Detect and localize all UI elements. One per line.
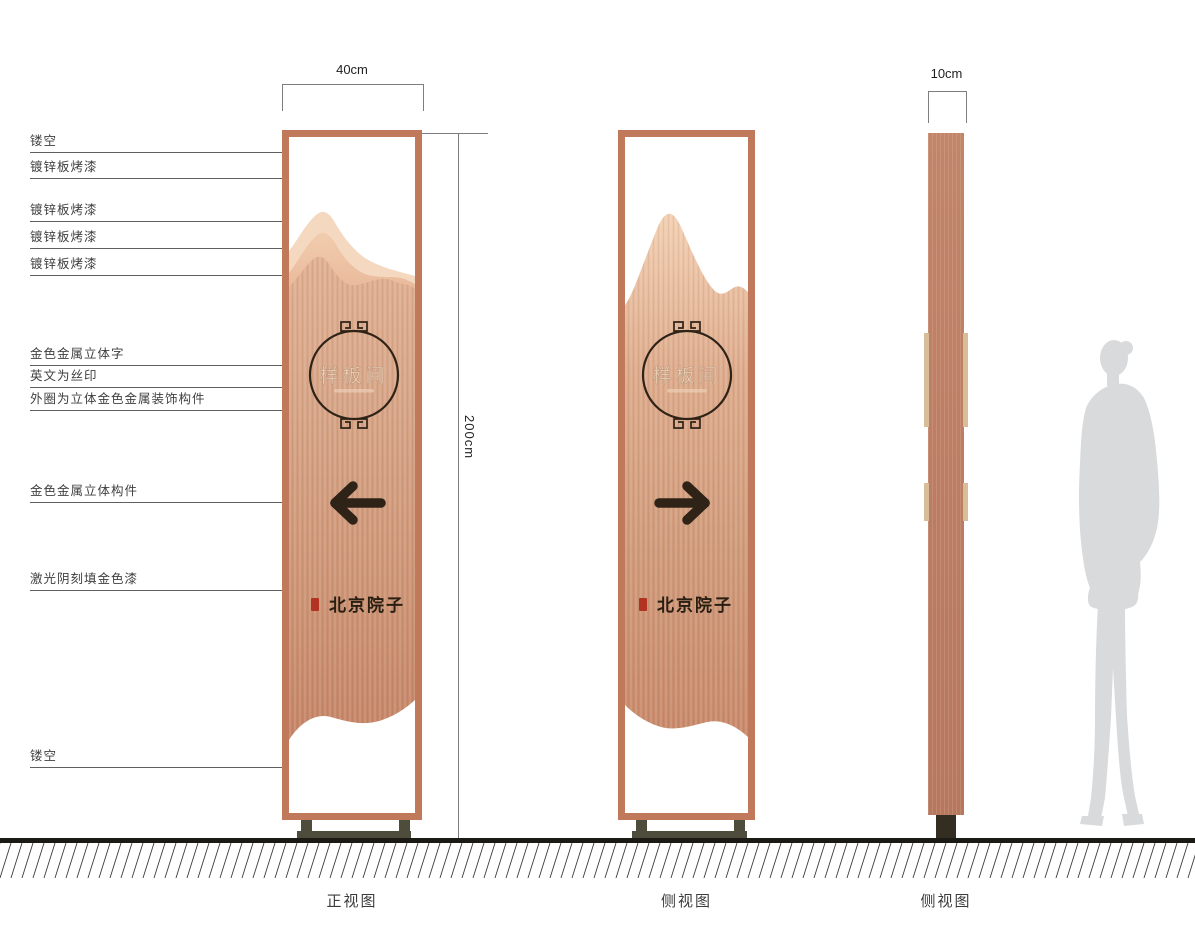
annotation-label: 镀锌板烤漆 [30,226,98,245]
profile-protrusion-medallion [963,333,968,427]
sign-side-artwork: 样板间 北京院子 [625,137,748,813]
medallion-text: 样板间 [319,365,388,387]
brand-text: 北京院子 [657,595,733,616]
annotation-label: 镀锌板烤漆 [30,199,98,218]
sign-profile-view [928,133,964,815]
english-silkscreen-text [334,389,374,393]
annotation-galvanized-3: 镀锌板烤漆 [30,230,293,249]
annotation-label: 英文为丝印 [30,365,98,384]
annotation-label: 激光阴刻填金色漆 [30,568,138,587]
dimension-height-label: 200cm [462,415,477,459]
dimension-height-tick [422,133,488,134]
caption-side-view-1: 侧视图 [618,890,755,911]
red-seal-stamp-icon [639,598,647,611]
annotation-label: 金色金属立体构件 [30,480,138,499]
annotation-label: 镂空 [30,745,57,764]
english-silkscreen-text [667,389,707,393]
brand-text: 北京院子 [329,595,405,616]
profile-protrusion-arrow [963,483,968,521]
annotation-laser-engraved: 激光阴刻填金色漆 [30,572,300,591]
annotation-hollow-top: 镂空 [30,134,305,153]
annotation-label: 镂空 [30,130,57,149]
dimension-thickness-label: 10cm [908,66,985,81]
human-silhouette [1038,336,1176,828]
annotation-outer-ring: 外圈为立体金色金属装饰构件 [30,392,315,411]
profile-foot [936,813,956,841]
dimension-width-bracket [282,84,424,111]
sign-side-view: 样板间 北京院子 [618,130,755,820]
dimension-height-line [458,133,459,843]
profile-protrusion-arrow [924,483,929,521]
annotation-label: 金色金属立体字 [30,343,125,362]
ground-hatch [0,843,1195,878]
annotation-label: 镀锌板烤漆 [30,253,98,272]
sign-front-artwork: 样板间 北京院子 [289,137,415,813]
caption-front-view: 正视图 [282,890,422,911]
signage-spec-drawing: 镂空 镀锌板烤漆 镀锌板烤漆 镀锌板烤漆 镀锌板烤漆 金色金属立体字 英文为丝印… [0,0,1195,927]
sign-front-view: 样板间 北京院子 [282,130,422,820]
profile-protrusion-medallion [924,333,929,427]
annotation-english-silkscreen: 英文为丝印 [30,369,320,388]
annotation-galvanized-4: 镀锌板烤漆 [30,257,293,276]
annotation-label: 镀锌板烤漆 [30,156,98,175]
panel-brush-texture [625,214,748,737]
red-seal-stamp-icon [311,598,319,611]
annotation-gold-letters: 金色金属立体字 [30,347,322,366]
annotation-galvanized-1: 镀锌板烤漆 [30,160,286,179]
medallion-text: 样板间 [652,365,721,387]
dimension-thickness-bracket [928,91,967,123]
annotation-galvanized-2: 镀锌板烤漆 [30,203,325,222]
annotation-hollow-bottom: 镂空 [30,749,302,768]
annotation-label: 外圈为立体金色金属装饰构件 [30,388,206,407]
caption-side-view-2: 侧视图 [878,890,1014,911]
dimension-width-label: 40cm [282,62,422,77]
